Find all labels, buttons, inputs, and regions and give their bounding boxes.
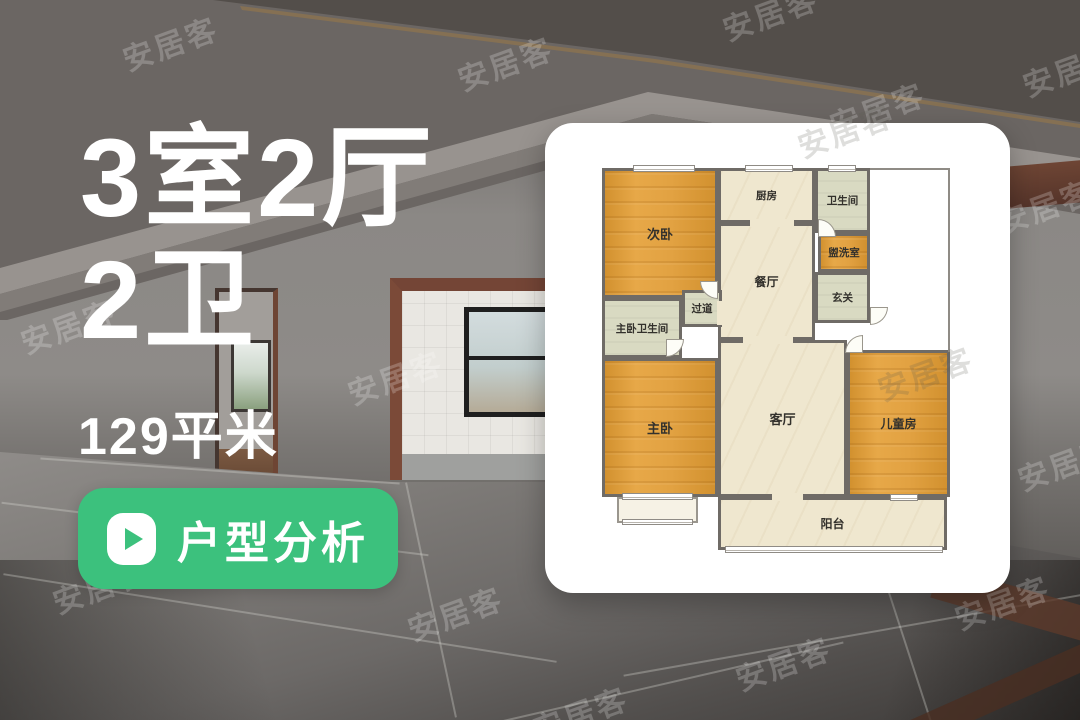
room-label: 儿童房 — [880, 415, 916, 432]
room-label: 厨房 — [756, 188, 777, 203]
area-text: 129平米 — [78, 394, 279, 469]
boundary-line — [870, 168, 950, 170]
room-label: 过道 — [692, 301, 713, 316]
listing-image: 安居客 安居客 安居客 安居客 安居客 安居客 安居客 安居客 安居客 安居客 … — [0, 0, 1080, 720]
room-kitchen: 厨房 — [718, 168, 815, 223]
wall-opening — [772, 493, 803, 501]
play-icon — [107, 513, 156, 565]
room-label: 主卧 — [647, 418, 673, 437]
window — [745, 165, 793, 172]
boundary-line — [948, 168, 950, 352]
room-entry: 玄关 — [815, 272, 870, 323]
room-master-bedroom: 主卧 — [602, 358, 718, 497]
headline: 3室2厅 2卫 — [80, 118, 434, 362]
play-triangle-icon — [125, 528, 143, 550]
window — [633, 165, 695, 172]
room-washroom: 盥洗室 — [818, 233, 870, 272]
room-label: 餐厅 — [754, 273, 778, 290]
headline-line1: 3室2厅 — [80, 118, 434, 240]
door-arc — [870, 307, 888, 325]
floorplan-card[interactable]: 次卧 厨房 卫生间 盥洗室 餐厅 玄关 过道 主卧卫生间 主卧 客厅 儿童房 阳… — [545, 123, 1010, 593]
room-bedroom-2: 次卧 — [602, 168, 718, 298]
window — [725, 546, 943, 553]
headline-line2: 2卫 — [80, 240, 434, 362]
room-label: 卫生间 — [827, 193, 859, 208]
wall-opening — [743, 336, 793, 344]
room-label: 主卧卫生间 — [616, 321, 669, 336]
wall-opening — [717, 301, 725, 325]
window — [828, 165, 856, 172]
watermark: 安居客 — [1011, 424, 1080, 499]
floorplan-analysis-button[interactable]: 户型分析 — [78, 488, 398, 589]
wall-opening — [750, 219, 794, 227]
room-label: 阳台 — [820, 515, 844, 532]
room-label: 次卧 — [647, 224, 673, 243]
cta-label: 户型分析 — [177, 507, 369, 571]
room-balcony: 阳台 — [718, 497, 947, 550]
window — [622, 493, 693, 500]
door-arc — [845, 335, 863, 353]
floorplan-diagram: 次卧 厨房 卫生间 盥洗室 餐厅 玄关 过道 主卧卫生间 主卧 客厅 儿童房 阳… — [545, 123, 1010, 593]
window — [890, 494, 918, 501]
room-label: 玄关 — [832, 290, 853, 305]
room-label: 客厅 — [769, 409, 795, 428]
room-living: 客厅 — [718, 340, 847, 497]
room-dining: 餐厅 — [718, 223, 815, 340]
window — [622, 519, 693, 525]
room-label: 盥洗室 — [828, 245, 860, 260]
